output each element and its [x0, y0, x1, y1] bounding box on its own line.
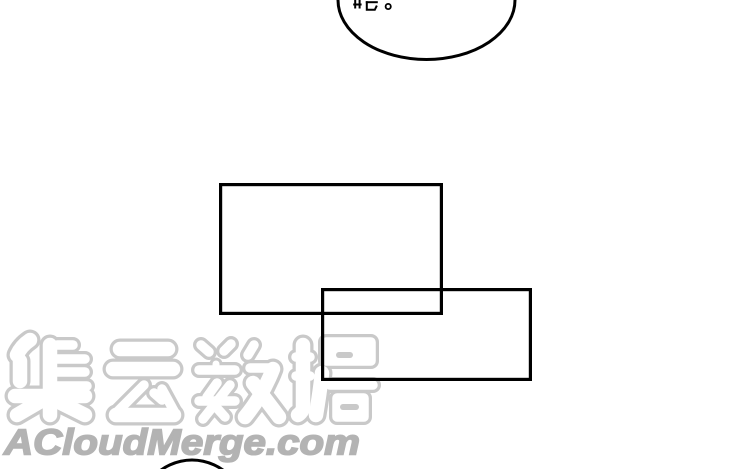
- svg-text:ACloudMerge.com: ACloudMerge.com: [3, 422, 360, 463]
